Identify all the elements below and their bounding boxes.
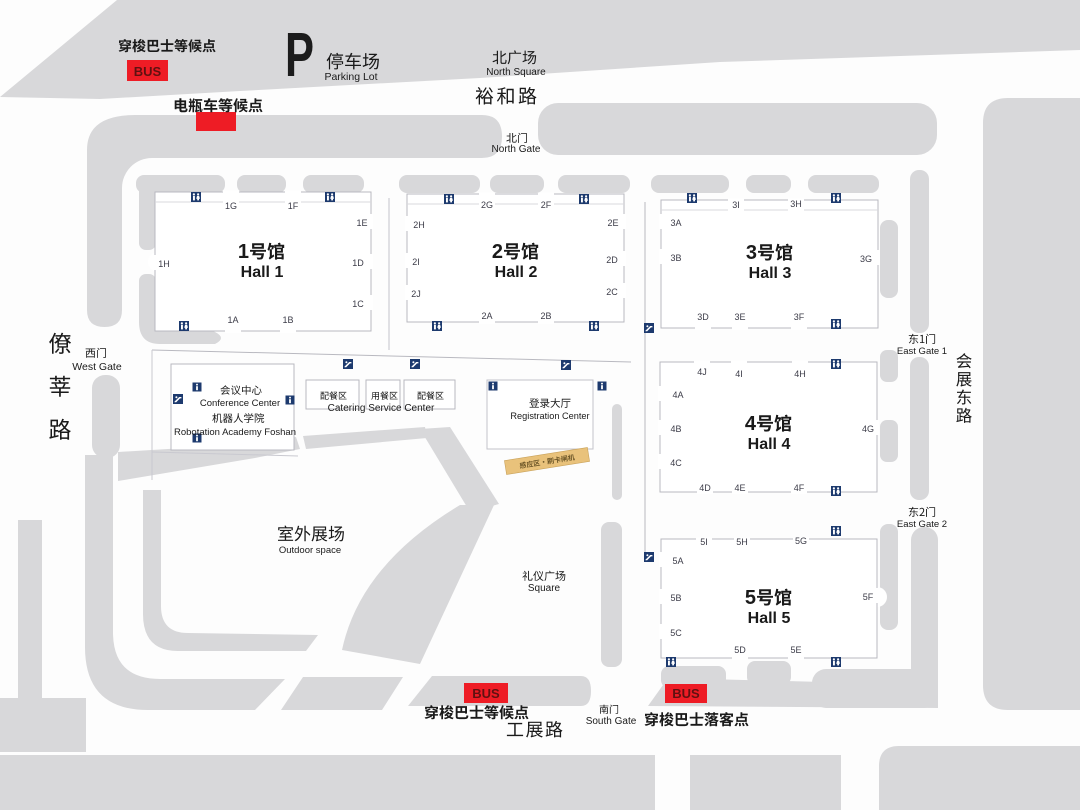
- svg-text:P: P: [285, 21, 314, 90]
- svg-text:4B: 4B: [670, 424, 681, 434]
- svg-text:3H: 3H: [790, 199, 802, 209]
- svg-text:1: 1: [238, 241, 249, 263]
- svg-text:BUS: BUS: [672, 686, 700, 701]
- svg-text:1C: 1C: [352, 299, 364, 309]
- svg-text:2D: 2D: [606, 255, 618, 265]
- svg-text:5D: 5D: [734, 645, 746, 655]
- svg-text:2H: 2H: [413, 220, 425, 230]
- svg-text:2G: 2G: [481, 200, 493, 210]
- svg-text:2: 2: [492, 241, 503, 263]
- svg-text:5I: 5I: [700, 537, 708, 547]
- svg-text:Outdoor space: Outdoor space: [279, 545, 341, 556]
- svg-text:2A: 2A: [481, 311, 492, 321]
- svg-text:4J: 4J: [697, 367, 707, 377]
- svg-text:2E: 2E: [607, 218, 618, 228]
- svg-text:4: 4: [745, 413, 757, 435]
- svg-text:Hall 5: Hall 5: [748, 610, 791, 627]
- svg-text:4I: 4I: [735, 369, 743, 379]
- svg-text:2B: 2B: [540, 311, 551, 321]
- svg-text:1E: 1E: [356, 218, 367, 228]
- svg-text:North Gate: North Gate: [492, 144, 541, 155]
- svg-text:5A: 5A: [672, 556, 683, 566]
- svg-text:5: 5: [745, 587, 756, 609]
- svg-text:1B: 1B: [282, 315, 293, 325]
- svg-text:Hall 2: Hall 2: [495, 264, 538, 281]
- svg-text:Catering Service Center: Catering Service Center: [328, 403, 435, 414]
- svg-text:4E: 4E: [734, 483, 745, 493]
- svg-text:4D: 4D: [699, 483, 711, 493]
- svg-text:1G: 1G: [225, 201, 237, 211]
- svg-text:West Gate: West Gate: [72, 361, 122, 373]
- svg-text:5E: 5E: [790, 645, 801, 655]
- svg-text:5F: 5F: [863, 592, 874, 602]
- svg-text:2C: 2C: [606, 287, 618, 297]
- svg-text:Hall 1: Hall 1: [241, 264, 284, 281]
- svg-text:3I: 3I: [732, 200, 740, 210]
- svg-text:3F: 3F: [794, 312, 805, 322]
- svg-text:Hall 3: Hall 3: [749, 265, 792, 282]
- svg-text:East Gate 1: East Gate 1: [897, 346, 947, 357]
- svg-text:5G: 5G: [795, 536, 807, 546]
- svg-text:4H: 4H: [794, 369, 806, 379]
- svg-text:2J: 2J: [411, 289, 421, 299]
- svg-text:3G: 3G: [860, 254, 872, 264]
- svg-text:4C: 4C: [670, 458, 682, 468]
- svg-text:1H: 1H: [158, 259, 170, 269]
- svg-text:3A: 3A: [670, 218, 681, 228]
- svg-text:3B: 3B: [670, 253, 681, 263]
- svg-text:5C: 5C: [670, 628, 682, 638]
- svg-text:3D: 3D: [697, 312, 709, 322]
- svg-text:Conference Center: Conference Center: [200, 398, 280, 409]
- svg-text:Robotation Academy Foshan: Robotation Academy Foshan: [174, 427, 296, 438]
- svg-text:5H: 5H: [736, 537, 748, 547]
- svg-text:4F: 4F: [794, 483, 805, 493]
- svg-text:1D: 1D: [352, 258, 364, 268]
- svg-text:4G: 4G: [862, 424, 874, 434]
- svg-text:4A: 4A: [672, 390, 683, 400]
- svg-text:Parking Lot: Parking Lot: [324, 71, 377, 83]
- svg-text:Square: Square: [528, 583, 561, 594]
- svg-text:2I: 2I: [412, 257, 420, 267]
- svg-text:Hall 4: Hall 4: [748, 436, 791, 453]
- svg-text:BUS: BUS: [472, 686, 500, 701]
- svg-text:Registration Center: Registration Center: [510, 411, 589, 421]
- svg-text:2F: 2F: [541, 200, 552, 210]
- svg-text:5B: 5B: [670, 593, 681, 603]
- svg-text:3: 3: [746, 242, 757, 264]
- svg-text:1A: 1A: [227, 315, 238, 325]
- svg-text:BUS: BUS: [134, 64, 162, 79]
- svg-text:1F: 1F: [288, 201, 299, 211]
- svg-text:South Gate: South Gate: [586, 716, 637, 727]
- svg-text:North Square: North Square: [486, 67, 546, 78]
- svg-text:3E: 3E: [734, 312, 745, 322]
- svg-text:East Gate 2: East Gate 2: [897, 519, 947, 530]
